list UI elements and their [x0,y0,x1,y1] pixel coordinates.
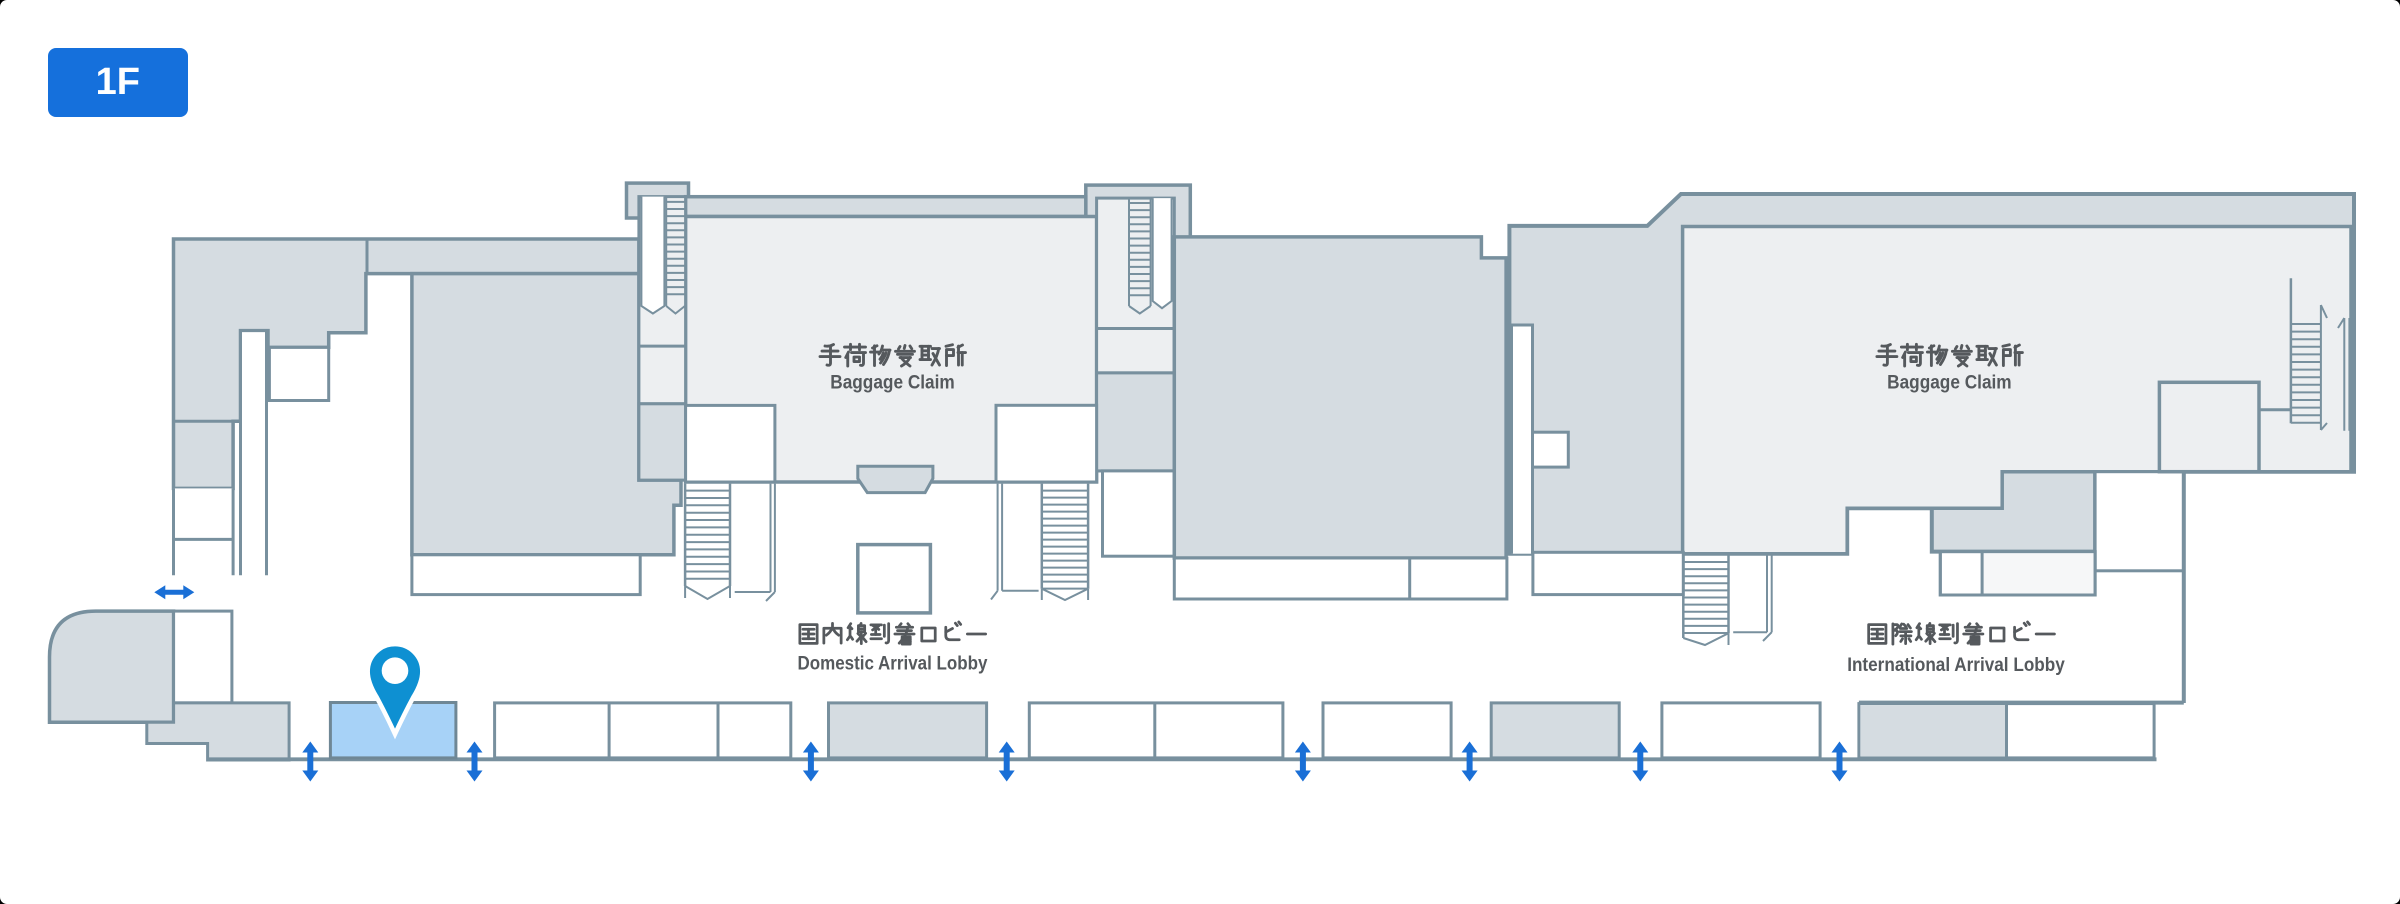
svg-text:Domestic Arrival Lobby: Domestic Arrival Lobby [798,654,988,675]
svg-text:Baggage Claim: Baggage Claim [1887,373,2012,394]
svg-text:Baggage Claim: Baggage Claim [830,373,955,394]
svg-text:International Arrival Lobby: International Arrival Lobby [1847,655,2065,676]
